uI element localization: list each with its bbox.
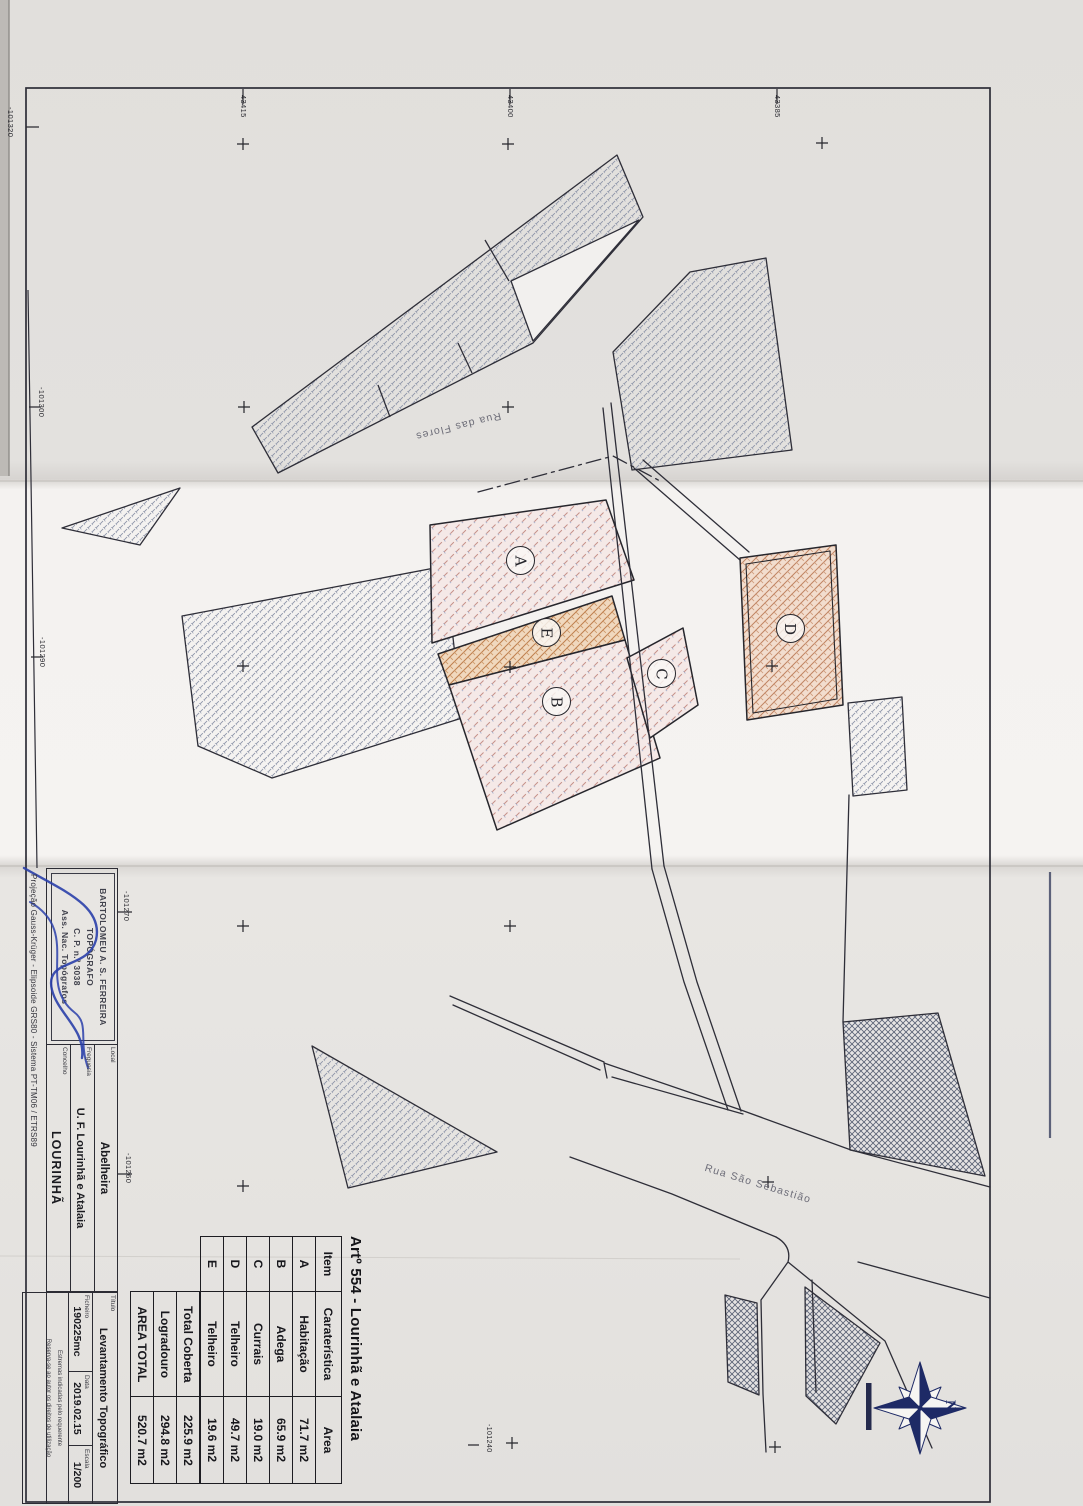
cell-area-a: 71.7 m2 xyxy=(293,1397,316,1484)
cell-carat-a: Habitação xyxy=(293,1292,316,1397)
title-block-notes: Estremas indicadas pelo requerente Reser… xyxy=(22,1292,68,1504)
building-label-d-text: D xyxy=(782,622,800,634)
coord-label-inner: -101240 xyxy=(481,1424,492,1468)
field-local: Local Abelheira xyxy=(94,1044,118,1292)
scanned-survey-sheet: -101320 -101300 -101290 -101270 -101260 … xyxy=(0,0,1083,1506)
note-line-1: Estremas indicadas pelo requerente xyxy=(53,1292,64,1504)
coord-label-left-1: -101320 xyxy=(4,107,15,151)
field-concelho-value: LOURINHÃ xyxy=(49,1044,63,1292)
coord-label-top-3: -43385 xyxy=(771,92,782,136)
area-table-block: Artº 554 - Lourinhã e Atalaia Item Carat… xyxy=(112,1236,364,1506)
field-ficheiro: Ficheiro 190225mc xyxy=(68,1292,92,1372)
building-label-e-text: E xyxy=(537,627,555,638)
cell-area-b: 65.9 m2 xyxy=(270,1397,293,1484)
coord-label-left-3: -101290 xyxy=(36,637,47,681)
field-escala-label: Escala xyxy=(83,1449,90,1469)
table-row: AREA TOTAL 520.7 m2 xyxy=(131,1292,154,1484)
cell-item-e: E xyxy=(201,1237,224,1292)
header-caracteristica: Caraterística xyxy=(316,1292,342,1397)
cell-area-c: 19.0 m2 xyxy=(247,1397,270,1484)
area-table-header-row: Item Caraterística Area xyxy=(316,1237,342,1484)
building-label-a-text: A xyxy=(512,555,530,566)
table-row: C Currais 19.0 m2 xyxy=(247,1237,270,1484)
table-row: D Telheiro 49.7 m2 xyxy=(224,1237,247,1484)
field-data: Data 2019.02.15 xyxy=(68,1372,92,1446)
note-line-2: Reserva-se ao autor os direitos de utili… xyxy=(42,1292,53,1504)
building-label-b-text: B xyxy=(548,696,566,707)
cell-carat-d: Telheiro xyxy=(224,1292,247,1397)
table-row: Total Coberta 225.9 m2 xyxy=(177,1292,200,1484)
field-data-label: Data xyxy=(83,1375,90,1389)
field-local-label: Local xyxy=(109,1047,116,1063)
field-titulo-label: Título xyxy=(109,1295,116,1311)
field-freguesia-value: U. F. Lourinhã e Atalaia xyxy=(74,1044,86,1292)
header-area: Area xyxy=(316,1397,342,1484)
cell-item-d: D xyxy=(224,1237,247,1292)
parcel-south-dense-a xyxy=(725,1295,759,1395)
field-freguesia: Freguesia U. F. Lourinhã e Atalaia xyxy=(70,1044,94,1292)
cell-logradouro-value: 294.8 m2 xyxy=(154,1397,177,1484)
building-label-c: C xyxy=(647,659,676,688)
title-block: BARTOLOMEU A. S. FERREIRA TOPÓGRAFO C. P… xyxy=(22,868,118,1506)
subject-buildings xyxy=(430,500,843,830)
road-sao-sebastiao-lower xyxy=(570,1157,990,1298)
coord-label-left-5: -101260 xyxy=(122,1153,133,1197)
field-data-value: 2019.02.15 xyxy=(71,1372,83,1445)
cell-item-b: B xyxy=(270,1237,293,1292)
area-table-summary: Total Coberta 225.9 m2 Logradouro 294.8 … xyxy=(130,1291,200,1484)
cell-item-a: A xyxy=(293,1237,316,1292)
coord-label-top-2: -43400 xyxy=(504,92,515,136)
cell-area-e: 19.6 m2 xyxy=(201,1397,224,1484)
building-label-d: D xyxy=(776,614,805,643)
coord-label-top-1: -43415 xyxy=(237,92,248,136)
parcel-southeast-dense xyxy=(843,1013,985,1176)
parcel-west-band xyxy=(182,566,462,778)
field-concelho: Concelho LOURINHÃ xyxy=(46,1044,70,1292)
header-item: Item xyxy=(316,1237,342,1292)
cell-carat-b: Adega xyxy=(270,1292,293,1397)
cell-area-d: 49.7 m2 xyxy=(224,1397,247,1484)
building-label-a: A xyxy=(506,546,535,575)
cell-total-coberta-label: Total Coberta xyxy=(177,1292,200,1397)
field-escala-value: 1/200 xyxy=(71,1446,83,1504)
field-titulo-value: Levantamento Topográfico xyxy=(97,1292,109,1504)
field-freguesia-label: Freguesia xyxy=(85,1047,92,1076)
building-label-b: B xyxy=(542,687,571,716)
table-row: E Telheiro 19.6 m2 xyxy=(201,1237,224,1484)
compass-bar xyxy=(866,1383,872,1430)
plan-title: Artº 554 - Lourinhã e Atalaia xyxy=(347,1236,364,1506)
field-escala: Escala 1/200 xyxy=(68,1446,92,1504)
table-row: B Adega 65.9 m2 xyxy=(270,1237,293,1484)
cell-area-total-label: AREA TOTAL xyxy=(131,1292,154,1397)
cell-carat-e: Telheiro xyxy=(201,1292,224,1397)
north-label: N xyxy=(942,1400,958,1416)
parcel-southwest-triangle xyxy=(312,1046,497,1188)
cell-item-c: C xyxy=(247,1237,270,1292)
field-titulo: Título Levantamento Topográfico xyxy=(92,1292,118,1504)
table-row: A Habitação 71.7 m2 xyxy=(293,1237,316,1484)
cell-area-total-value: 520.7 m2 xyxy=(131,1397,154,1484)
coord-label-left-2: -101300 xyxy=(35,387,46,431)
parcel-west-triangle xyxy=(62,488,180,545)
table-row: Logradouro 294.8 m2 xyxy=(154,1292,177,1484)
area-table: Item Caraterística Area A Habitação 71.7… xyxy=(200,1236,342,1484)
field-local-value: Abelheira xyxy=(98,1044,110,1292)
projection-note: Projeção Gauss-Krüger - Elipsoide GRS80 … xyxy=(29,874,38,1147)
field-ficheiro-value: 190225mc xyxy=(71,1292,83,1371)
building-label-c-text: C xyxy=(652,668,670,679)
cell-logradouro-label: Logradouro xyxy=(154,1292,177,1397)
building-label-e: E xyxy=(532,618,561,647)
parcel-northeast xyxy=(613,258,792,470)
parcel-east-small xyxy=(848,697,907,796)
cell-carat-c: Currais xyxy=(247,1292,270,1397)
field-ficheiro-label: Ficheiro xyxy=(83,1295,90,1318)
cell-total-coberta-value: 225.9 m2 xyxy=(177,1397,200,1484)
